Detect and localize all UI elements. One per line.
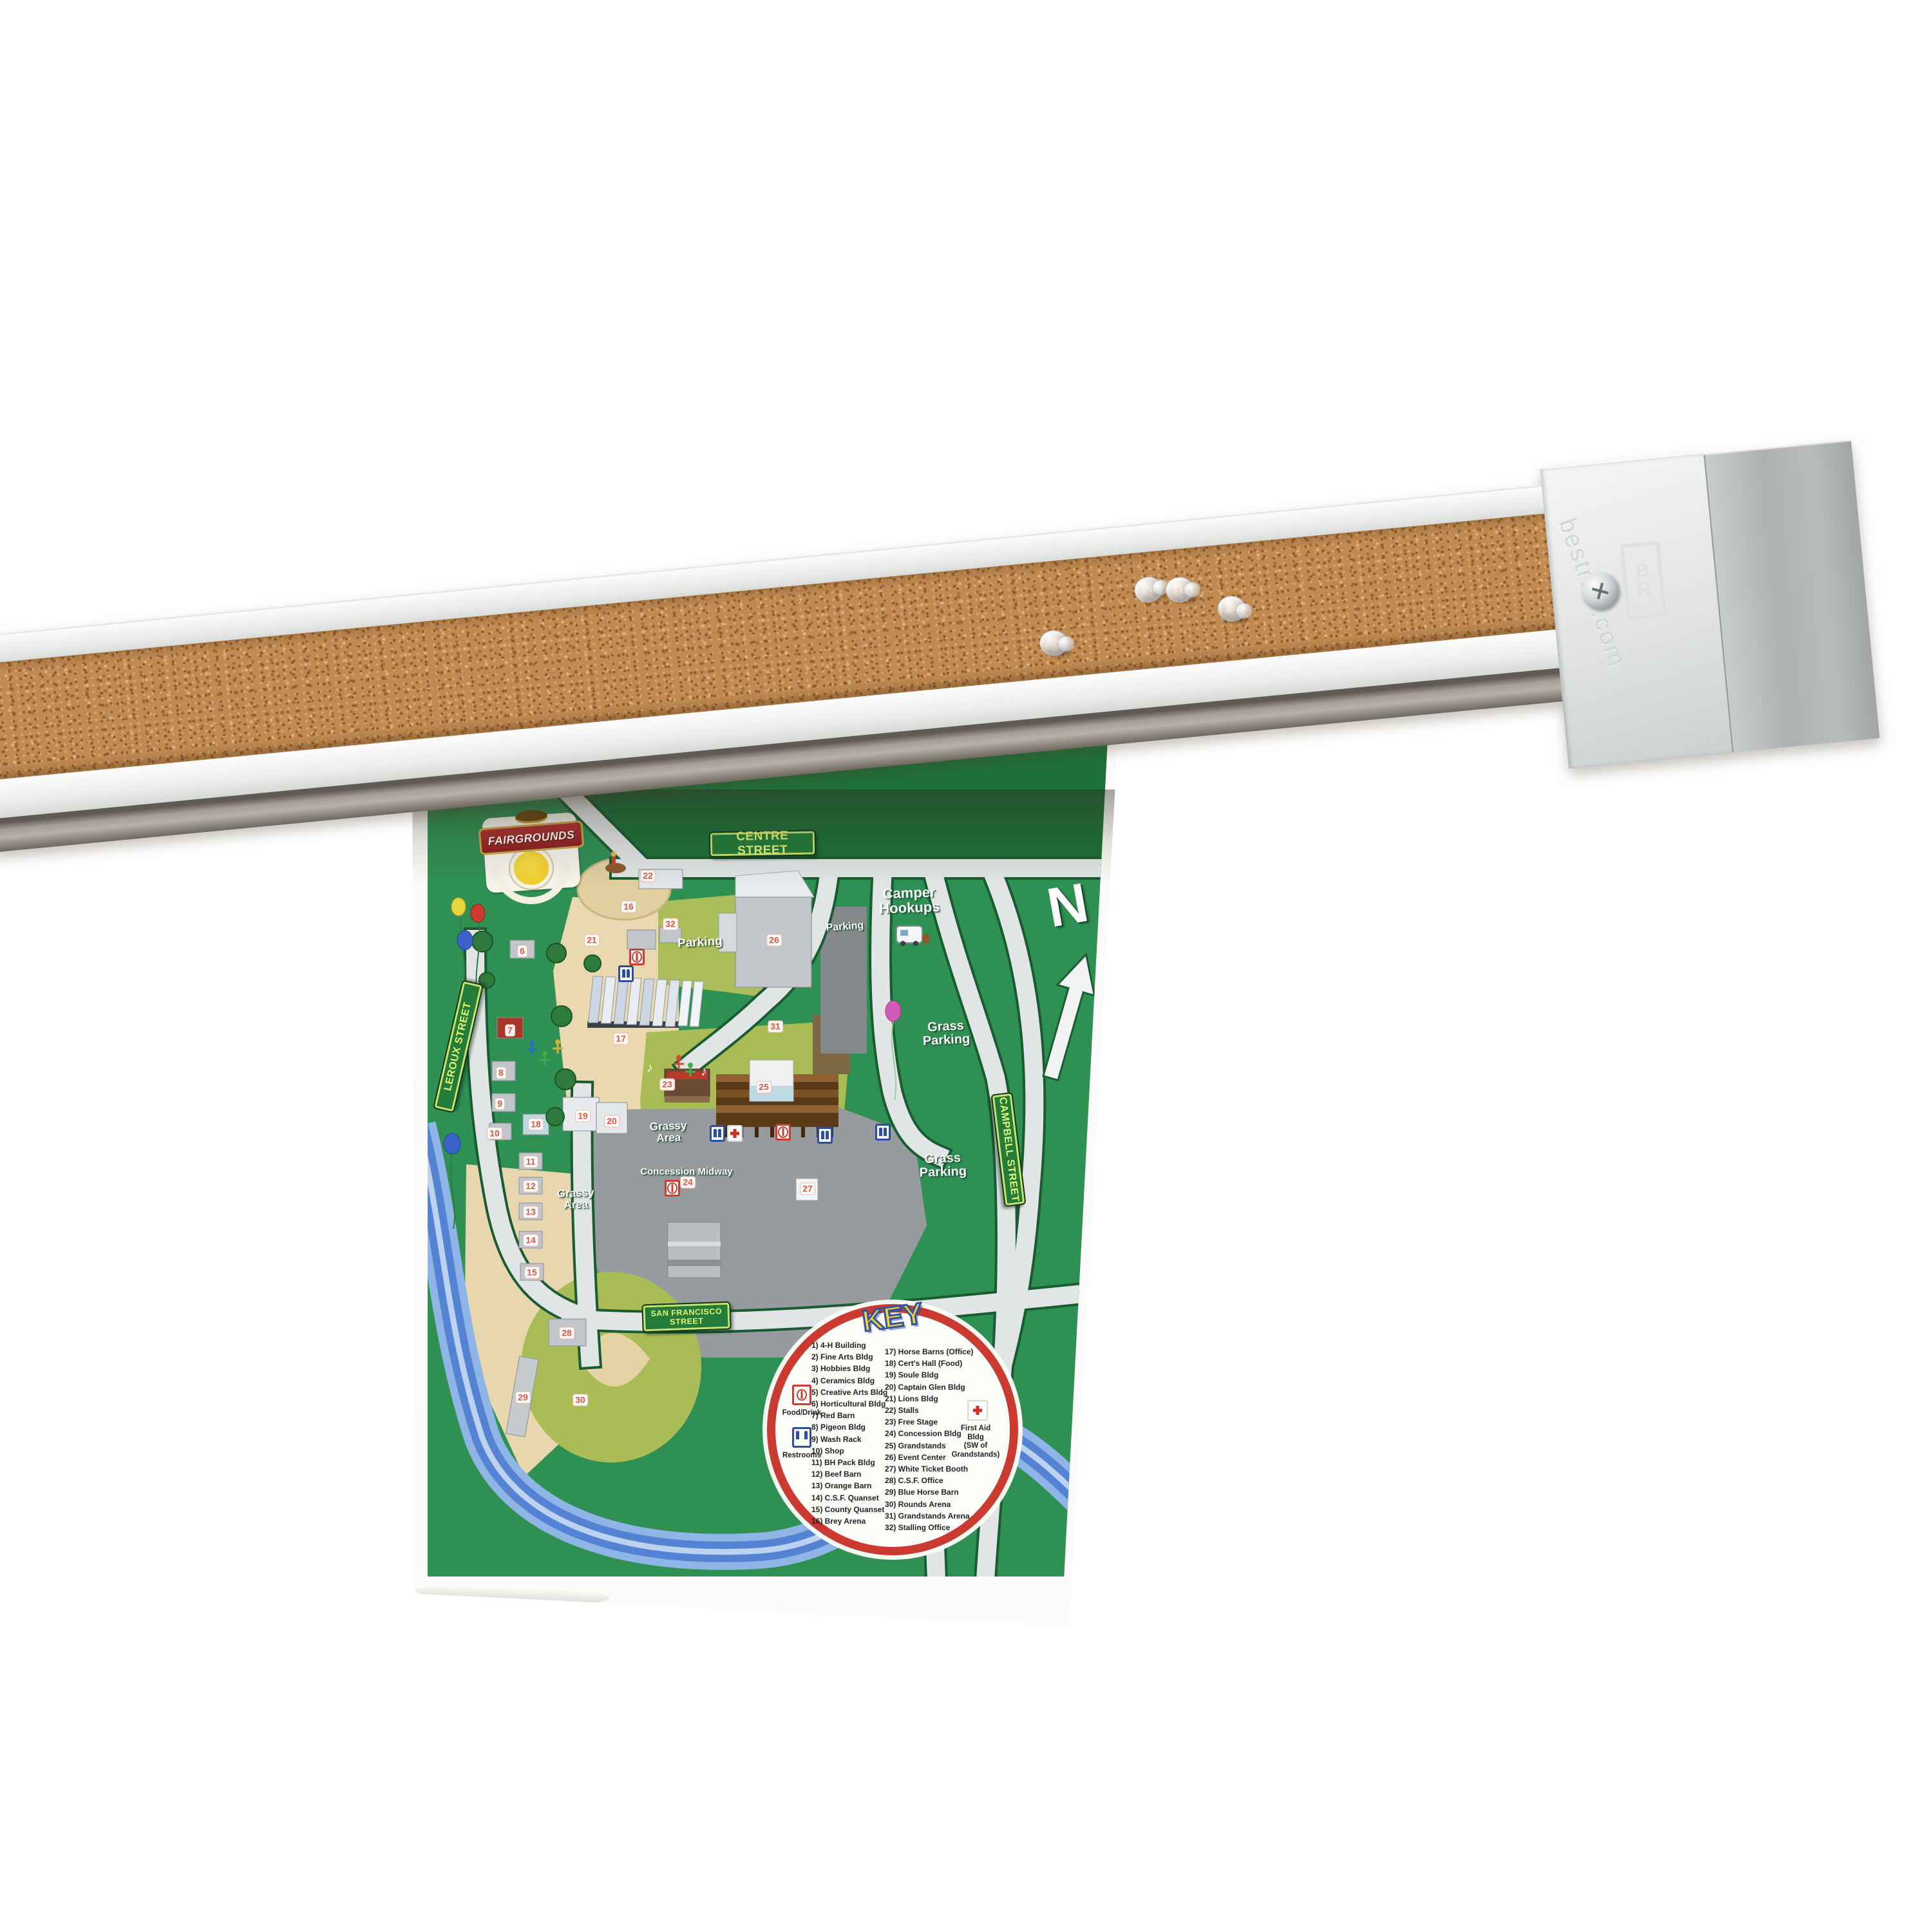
building-number: 20 (604, 1115, 620, 1128)
building-number: 23 (659, 1079, 675, 1091)
restroom-icon (710, 1125, 725, 1142)
music-note-icon: ♪ (647, 1061, 653, 1075)
building-number: 15 (524, 1267, 540, 1279)
first-aid-label: First Aid Bldg (SW of Grandstands) (938, 1425, 1014, 1459)
map-key-legend: KEY 1) 4-H Building2) Fine Arts Bldg3) H… (767, 1304, 1018, 1555)
building-number: 18 (528, 1119, 544, 1131)
building-number: 24 (680, 1177, 696, 1189)
building-number: 19 (575, 1110, 591, 1122)
legend-item: 9) Wash Rack (811, 1434, 887, 1445)
first-aid-icon (967, 1400, 988, 1421)
legend-item: 8) Pigeon Bldg (811, 1421, 887, 1433)
building-number: 14 (523, 1235, 538, 1247)
legend-item: 31) Grandstands Arena (885, 1510, 973, 1522)
building-number: 9 (495, 1098, 505, 1110)
restroom-icon (817, 1127, 833, 1144)
building-number: 11 (524, 1156, 538, 1168)
building-number: 8 (496, 1067, 506, 1079)
bar-end-cap: bestrite.com BR (1540, 437, 1880, 768)
street-sign-san-francisco: SAN FRANCISCO STREET (641, 1302, 731, 1333)
brand-monogram-logo: BR (1620, 541, 1667, 620)
building-number: 13 (523, 1206, 538, 1218)
label-grass-parking-upper: Grass Parking (922, 1019, 970, 1048)
legend-item: 2) Fine Arts Bldg (811, 1351, 887, 1363)
legend-item: 18) Cert's Hall (Food) (885, 1358, 973, 1369)
food-icon (665, 1180, 680, 1197)
legend-item: 27) White Ticket Booth (885, 1463, 973, 1475)
push-pin (1215, 591, 1256, 630)
building-number: 28 (559, 1327, 574, 1340)
legend-item: 16) Brey Arena (811, 1515, 887, 1527)
legend-item: 15) County Quanset (811, 1504, 887, 1515)
legend-item: 30) Rounds Arena (885, 1499, 973, 1510)
building-number: 25 (756, 1081, 772, 1094)
firstaid-icon (727, 1125, 743, 1142)
building-number: 17 (613, 1033, 629, 1045)
building-number: 29 (515, 1392, 531, 1404)
product-photo: ♪ ♪ FAIRGROUNDS (0, 0, 1932, 1932)
end-cap-front-face: bestrite.com BR (1540, 451, 1732, 768)
legend-item: 29) Blue Horse Barn (885, 1486, 973, 1498)
legend-item: 17) Horse Barns (Office) (885, 1346, 973, 1358)
legend-item: 19) Soule Bldg (885, 1369, 973, 1381)
restrooms-icon (792, 1427, 811, 1448)
legend-item: 4) Ceramics Bldg (811, 1375, 887, 1387)
label-grass-parking-lower: Grass Parking (919, 1151, 967, 1180)
label-concession-midway: Concession Midway (632, 1167, 741, 1177)
legend-item: 14) C.S.F. Quanset (811, 1492, 887, 1504)
food-icon (775, 1124, 791, 1141)
building-number: 7 (505, 1025, 515, 1037)
legend-item: 5) Creative Arts Bldg (811, 1387, 887, 1398)
building-number: 27 (800, 1183, 815, 1195)
key-title: KEY (860, 1296, 925, 1339)
building-number: 10 (487, 1128, 502, 1140)
music-note-icon: ♪ (701, 1065, 707, 1079)
restrooms-label: Restrooms (773, 1452, 831, 1461)
legend-item: 21) Lions Bldg (885, 1393, 973, 1405)
food-drink-icon (792, 1385, 811, 1405)
building-number: 31 (768, 1021, 783, 1033)
building-number: 30 (573, 1394, 588, 1406)
legend-item: 6) Horticultural Bldg (811, 1398, 887, 1410)
food-drink-label: Food/Drink (773, 1409, 831, 1418)
legend-item: 22) Stalls (885, 1405, 973, 1416)
legend-item: 20) Captain Glen Bldg (885, 1381, 973, 1393)
legend-item: 32) Stalling Office (885, 1522, 973, 1533)
legend-item: 28) C.S.F. Office (885, 1475, 973, 1486)
key-column-1: 1) 4-H Building2) Fine Arts Bldg3) Hobbi… (811, 1340, 887, 1527)
label-grassy-area-lower: Grassy Area (557, 1187, 595, 1211)
legend-item: 3) Hobbies Bldg (811, 1363, 887, 1374)
building-number: 12 (523, 1180, 538, 1193)
legend-item: 12) Beef Barn (811, 1468, 887, 1480)
push-pin (1039, 627, 1076, 662)
legend-item: 1) 4-H Building (811, 1340, 887, 1351)
push-pin (1165, 574, 1202, 608)
end-cap-side-face (1703, 440, 1880, 752)
restroom-icon (875, 1124, 891, 1141)
label-grassy-area-center: Grassy Area (650, 1120, 688, 1144)
legend-item: 13) Orange Barn (811, 1480, 887, 1492)
